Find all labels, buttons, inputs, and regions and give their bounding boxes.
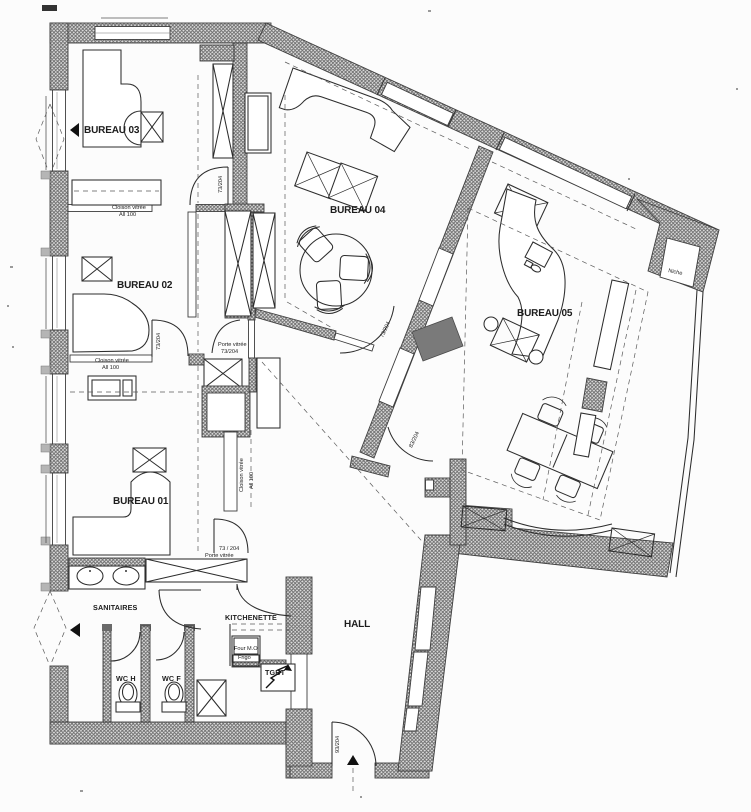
svg-text:73 / 204: 73 / 204 [219,545,239,552]
svg-text:BUREAU 04: BUREAU 04 [330,205,386,216]
svg-text:Frigo: Frigo [238,654,251,661]
svg-text:93/204: 93/204 [334,736,341,753]
svg-text:BUREAU 05: BUREAU 05 [517,308,573,319]
svg-text:73/204: 73/204 [217,176,224,193]
svg-text:HALL: HALL [344,619,370,630]
svg-text:BUREAU 03: BUREAU 03 [84,125,140,136]
svg-text:BUREAU 02: BUREAU 02 [117,280,173,291]
svg-text:SANITAIRES: SANITAIRES [93,603,138,612]
svg-text:Porte vitrée: Porte vitrée [218,341,247,348]
svg-text:TGBT: TGBT [265,668,286,677]
svg-text:BUREAU 01: BUREAU 01 [113,496,169,507]
svg-text:WC F: WC F [162,674,181,683]
svg-text:All 100: All 100 [248,472,255,489]
svg-text:73/204: 73/204 [155,333,162,350]
svg-text:Four M.O: Four M.O [234,646,258,652]
svg-text:All 100: All 100 [119,211,136,218]
svg-text:73/204: 73/204 [221,348,238,355]
svg-text:All 100: All 100 [102,364,119,371]
svg-text:WC H: WC H [116,674,136,683]
svg-text:Cloison vitrée: Cloison vitrée [238,458,245,492]
svg-text:Cloison vitrée: Cloison vitrée [112,204,146,211]
svg-text:Porte vitrée: Porte vitrée [205,552,234,559]
svg-text:KITCHENETTE: KITCHENETTE [225,613,277,622]
svg-text:Cloison vitrée: Cloison vitrée [95,357,129,364]
